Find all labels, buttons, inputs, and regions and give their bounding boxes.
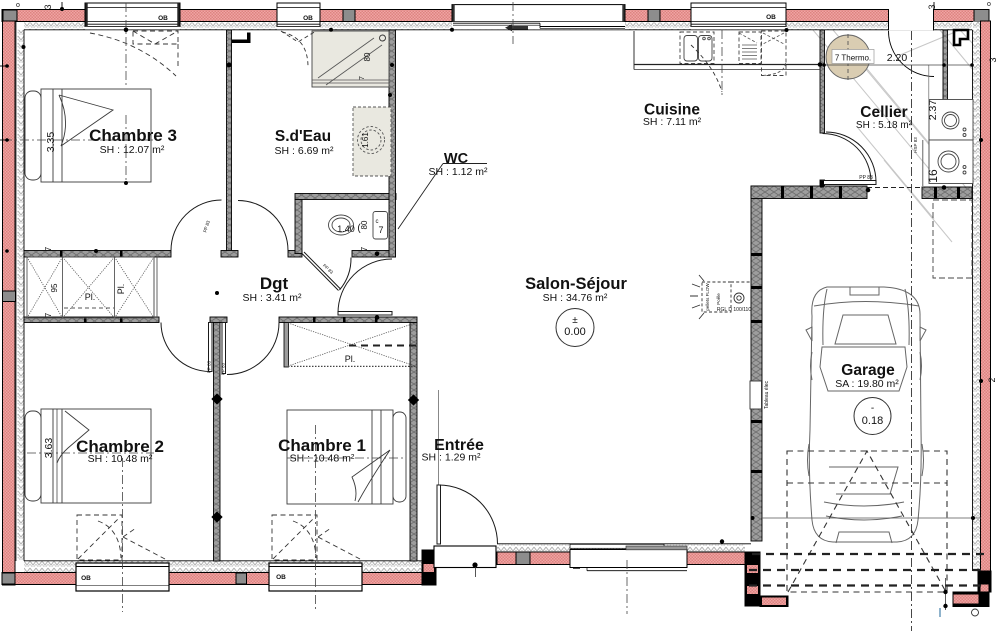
svg-text:Salon-Séjour: Salon-Séjour — [525, 275, 627, 293]
svg-text:Garage: Garage — [841, 362, 895, 379]
svg-text:SH : 6.69 m²: SH : 6.69 m² — [275, 145, 334, 157]
svg-text:Pl.: Pl. — [85, 292, 96, 302]
svg-text:7: 7 — [44, 312, 53, 317]
svg-text:1.40: 1.40 — [337, 224, 355, 234]
svg-text:OB: OB — [766, 14, 776, 21]
svg-text:PP 83: PP 83 — [207, 360, 212, 373]
svg-text:SH : 5.18 m²: SH : 5.18 m² — [856, 120, 913, 131]
svg-text:7: 7 — [378, 225, 383, 235]
svg-text:Pl.: Pl. — [345, 354, 356, 364]
svg-text:3.35: 3.35 — [45, 132, 57, 153]
svg-text:0.00: 0.00 — [564, 326, 585, 338]
svg-text:7 Thermo.: 7 Thermo. — [835, 54, 871, 63]
svg-text:3.63: 3.63 — [43, 438, 55, 459]
svg-text:Poêle: Poêle — [716, 293, 721, 305]
svg-text:3: 3 — [988, 57, 998, 62]
svg-text:Chambre 3: Chambre 3 — [89, 126, 177, 145]
svg-text:Dgt: Dgt — [260, 274, 289, 293]
svg-text:RGL D 100/110: RGL D 100/110 — [717, 307, 751, 313]
svg-text:SH : 12.07 m²: SH : 12.07 m² — [100, 144, 165, 156]
svg-text:WC: WC — [444, 151, 469, 167]
svg-text:SH : 10.48 m²: SH : 10.48 m² — [290, 453, 355, 465]
svg-text:Tableau élec: Tableau élec — [764, 380, 770, 409]
svg-text:o: o — [987, 1, 991, 8]
svg-text:3: 3 — [927, 4, 937, 9]
svg-text:7: 7 — [359, 76, 366, 80]
svg-text:OB: OB — [276, 574, 286, 581]
svg-text:95: 95 — [50, 283, 59, 292]
svg-text:±: ± — [572, 315, 578, 326]
svg-text:HSP 83: HSP 83 — [913, 137, 918, 153]
svg-text:SH : 34.76 m²: SH : 34.76 m² — [543, 292, 608, 304]
svg-text:SH : 7.11 m²: SH : 7.11 m² — [643, 116, 702, 128]
svg-text:2: 2 — [987, 377, 997, 382]
svg-text:2.20: 2.20 — [887, 52, 908, 64]
svg-text:80: 80 — [360, 220, 369, 229]
svg-text:3: 3 — [43, 4, 53, 9]
svg-text:7: 7 — [360, 246, 369, 251]
svg-text:-: - — [871, 403, 874, 414]
svg-text:pellets FLOW: pellets FLOW — [705, 283, 710, 311]
svg-text:16: 16 — [926, 169, 940, 183]
svg-text:PP 83: PP 83 — [221, 362, 226, 375]
svg-text:PP 83: PP 83 — [859, 175, 873, 181]
svg-text:SH : 1.29 m²: SH : 1.29 m² — [422, 452, 481, 464]
svg-text:SH : 1.12 m²: SH : 1.12 m² — [429, 166, 488, 178]
svg-text:Cellier: Cellier — [860, 104, 907, 121]
svg-text:80: 80 — [363, 52, 372, 61]
svg-text:SA : 19.80 m²: SA : 19.80 m² — [835, 378, 899, 390]
svg-text:OB: OB — [158, 15, 168, 22]
svg-text:S.d'Eau: S.d'Eau — [275, 128, 331, 145]
svg-text:Pl.: Pl. — [116, 284, 126, 295]
svg-text:o: o — [16, 2, 20, 9]
svg-text:SH : 3.41 m²: SH : 3.41 m² — [243, 292, 302, 304]
svg-text:OB: OB — [81, 575, 91, 582]
svg-text:1.61: 1.61 — [361, 132, 370, 148]
svg-text:2.37: 2.37 — [927, 100, 939, 121]
svg-text:OB: OB — [303, 15, 313, 22]
svg-text:SH : 10.48 m²: SH : 10.48 m² — [88, 453, 153, 465]
svg-text:0.18: 0.18 — [862, 415, 883, 427]
svg-text:7: 7 — [44, 246, 53, 251]
